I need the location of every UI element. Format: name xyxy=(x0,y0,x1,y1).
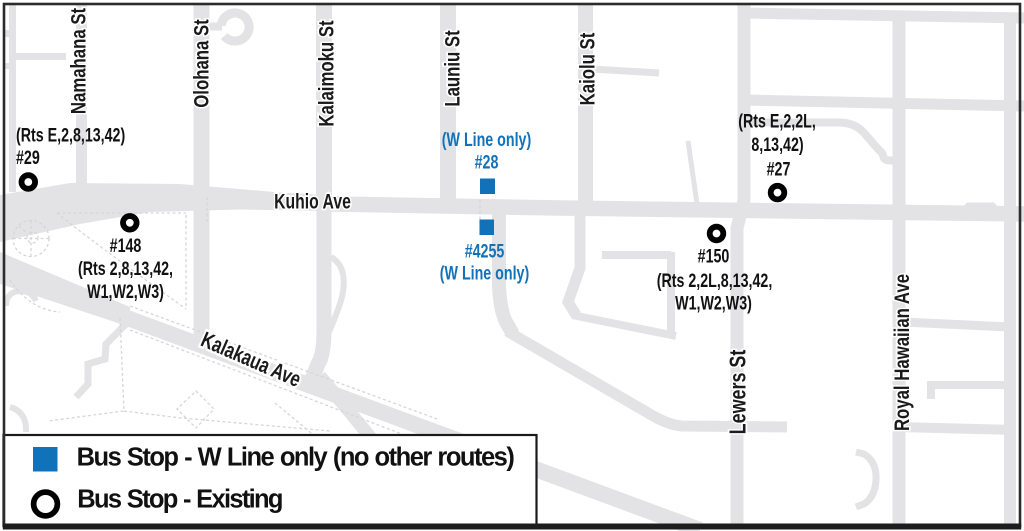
svg-text:Namahana St: Namahana St xyxy=(68,7,91,114)
svg-text:W1,W2,W3): W1,W2,W3) xyxy=(87,281,164,302)
svg-text:#150: #150 xyxy=(698,246,730,267)
svg-text:(W Line only): (W Line only) xyxy=(442,129,531,150)
svg-text:(Rts E,2,2L,: (Rts E,2,2L, xyxy=(738,111,816,132)
svg-text:Bus Stop - W Line only (no oth: Bus Stop - W Line only (no other routes) xyxy=(77,443,515,471)
svg-text:Lewers St: Lewers St xyxy=(725,350,751,435)
svg-text:Bus Stop - Existing: Bus Stop - Existing xyxy=(77,486,282,514)
svg-text:Launiu St: Launiu St xyxy=(442,30,465,107)
svg-text:#148: #148 xyxy=(110,235,142,256)
svg-text:#29: #29 xyxy=(16,147,40,168)
svg-text:Kaiolu St: Kaiolu St xyxy=(577,32,600,105)
svg-text:(Rts E,2,8,13,42): (Rts E,2,8,13,42) xyxy=(16,125,125,146)
svg-text:#28: #28 xyxy=(475,152,499,173)
svg-text:#27: #27 xyxy=(767,159,791,180)
svg-text:(Rts 2,2L,8,13,42,: (Rts 2,2L,8,13,42, xyxy=(657,270,773,291)
svg-text:#4255: #4255 xyxy=(465,241,505,262)
svg-text:8,13,42): 8,13,42) xyxy=(751,134,803,155)
svg-text:W1,W2,W3): W1,W2,W3) xyxy=(675,293,752,314)
svg-text:Royal Hawaiian Ave: Royal Hawaiian Ave xyxy=(891,274,914,431)
svg-text:Kuhio Ave: Kuhio Ave xyxy=(274,189,351,213)
svg-text:Olohana St: Olohana St xyxy=(191,19,214,108)
svg-text:Kalaimoku St: Kalaimoku St xyxy=(316,20,339,127)
svg-text:(W Line only): (W Line only) xyxy=(440,263,529,284)
svg-text:(Rts 2,8,13,42,: (Rts 2,8,13,42, xyxy=(78,258,173,279)
